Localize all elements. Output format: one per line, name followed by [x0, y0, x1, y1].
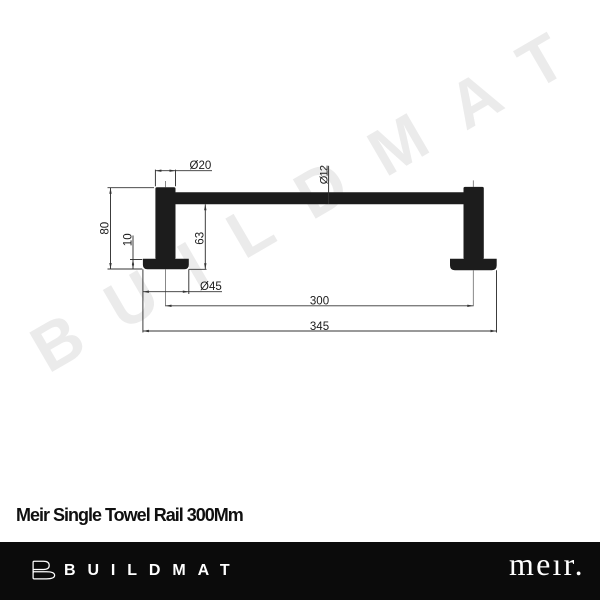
svg-text:Ø45: Ø45 [200, 281, 222, 293]
svg-text:10: 10 [123, 233, 135, 246]
svg-text:80: 80 [99, 222, 111, 235]
svg-text:Ø12: Ø12 [319, 165, 331, 184]
svg-text:345: 345 [310, 321, 329, 333]
svg-text:300: 300 [310, 296, 329, 308]
svg-text:63: 63 [195, 232, 207, 245]
svg-text:Ø20: Ø20 [190, 160, 212, 172]
